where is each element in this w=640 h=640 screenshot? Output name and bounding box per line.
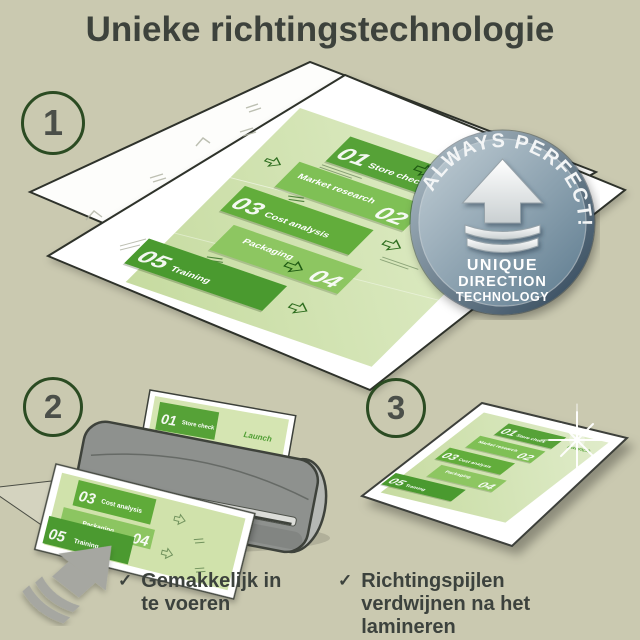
page-title: Unieke richtingstechnologie [0, 10, 640, 50]
always-perfect-badge: ALWAYS PERFECT! UNIQUE DIRECTION TECHNOL… [405, 125, 600, 320]
note-easy-feed: ✓ Gemakkelijk in te voeren [118, 570, 303, 616]
checkmark-icon: ✓ [338, 570, 352, 591]
step3-number-circle: 3 [366, 378, 426, 438]
step2-number-circle: 2 [23, 377, 83, 437]
note-text: Gemakkelijk in te voeren [141, 570, 303, 616]
step2-number: 2 [44, 388, 62, 426]
badge-line1: UNIQUE [467, 257, 538, 274]
checkmark-icon: ✓ [118, 570, 132, 591]
step3-number: 3 [387, 389, 405, 427]
note-text: Richtingspijlen verdwijnen na het lamine… [361, 570, 610, 639]
step1-number-circle: 1 [21, 91, 85, 155]
step1-number: 1 [43, 102, 63, 144]
badge-line3: TECHNOLOGY [456, 290, 549, 304]
badge-line2: DIRECTION [458, 274, 547, 290]
doc-item-number: 01 [160, 411, 178, 429]
note-arrows-disappear: ✓ Richtingspijlen verdwijnen na het lami… [338, 570, 610, 639]
infographic-canvas: Unieke richtingstechnologie [0, 0, 640, 640]
